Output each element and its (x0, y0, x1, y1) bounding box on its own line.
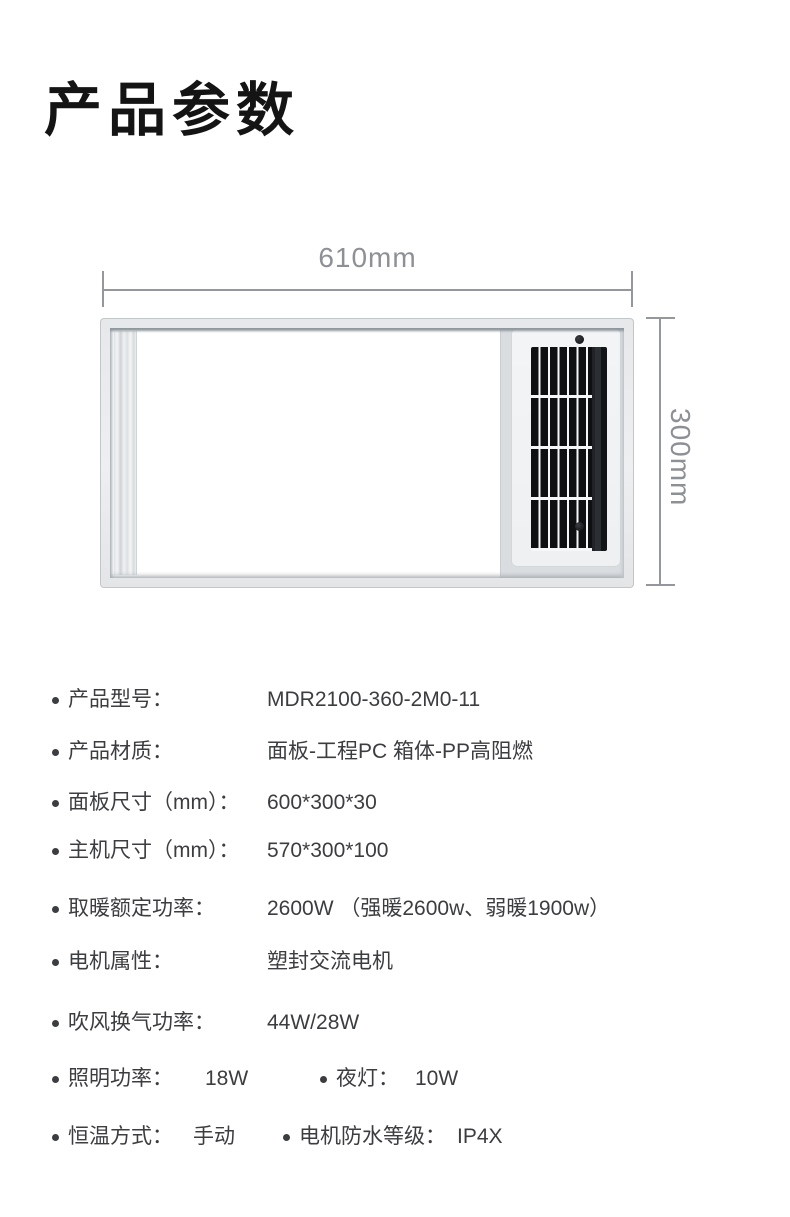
bullet-dot-icon (52, 1134, 59, 1141)
spec-row-panel-size: 面板尺寸（mm）： 600*300*30 (0, 790, 790, 816)
spec-row-heating-power: 取暖额定功率： 2600W （强暖2600w、弱暖1900w） (0, 896, 790, 922)
bullet-dot-icon (52, 697, 59, 704)
spec-row-host-size: 主机尺寸（mm）： 570*300*100 (0, 838, 790, 864)
spec-label: 电机防水等级： (299, 1124, 446, 1150)
spec-row-lighting-power: 照明功率： 18W 夜灯： 10W (0, 1066, 790, 1092)
spec-label: 电机属性： (68, 949, 173, 975)
spec-row-model: 产品型号： MDR2100-360-2M0-11 (0, 687, 790, 713)
bullet-dot-icon (52, 959, 59, 966)
spec-value: 18W (205, 1066, 248, 1092)
bullet-dot-icon (52, 848, 59, 855)
spec-list: 产品型号： MDR2100-360-2M0-11 产品材质： 面板-工程PC 箱… (0, 0, 790, 1217)
bullet-dot-icon (283, 1134, 290, 1141)
spec-row-fan-power: 吹风换气功率： 44W/28W (0, 1010, 790, 1036)
bullet-dot-icon (52, 749, 59, 756)
spec-value: IP4X (457, 1124, 503, 1150)
bullet-dot-icon (52, 906, 59, 913)
spec-value: 570*300*100 (267, 838, 388, 864)
spec-row-thermostat: 恒温方式： 手动 电机防水等级： IP4X (0, 1124, 790, 1150)
spec-label: 吹风换气功率： (68, 1010, 215, 1036)
spec-value: 44W/28W (267, 1010, 359, 1036)
spec-value: 手动 (193, 1124, 235, 1150)
product-parameters-page: 产品参数 610mm 300mm 产品型号 (0, 0, 790, 1217)
spec-value: 10W (415, 1066, 458, 1092)
spec-row-motor-type: 电机属性： 塑封交流电机 (0, 949, 790, 975)
spec-value: 2600W （强暖2600w、弱暖1900w） (267, 896, 610, 922)
spec-label: 恒温方式： (68, 1124, 173, 1150)
spec-value: 600*300*30 (267, 790, 377, 816)
spec-label: 面板尺寸（mm）： (68, 790, 240, 816)
bullet-dot-icon (52, 1076, 59, 1083)
spec-label: 取暖额定功率： (68, 896, 215, 922)
bullet-dot-icon (52, 1020, 59, 1027)
spec-value: 塑封交流电机 (267, 949, 393, 975)
spec-row-material: 产品材质： 面板-工程PC 箱体-PP高阻燃 (0, 739, 790, 765)
spec-label: 产品材质： (68, 739, 173, 765)
spec-label: 主机尺寸（mm）： (68, 838, 240, 864)
bullet-dot-icon (52, 800, 59, 807)
spec-label: 照明功率： (68, 1066, 173, 1092)
spec-label: 夜灯： (336, 1066, 399, 1092)
spec-value: 面板-工程PC 箱体-PP高阻燃 (267, 739, 533, 765)
bullet-dot-icon (320, 1076, 327, 1083)
spec-label: 产品型号： (68, 687, 173, 713)
spec-value: MDR2100-360-2M0-11 (267, 687, 480, 713)
